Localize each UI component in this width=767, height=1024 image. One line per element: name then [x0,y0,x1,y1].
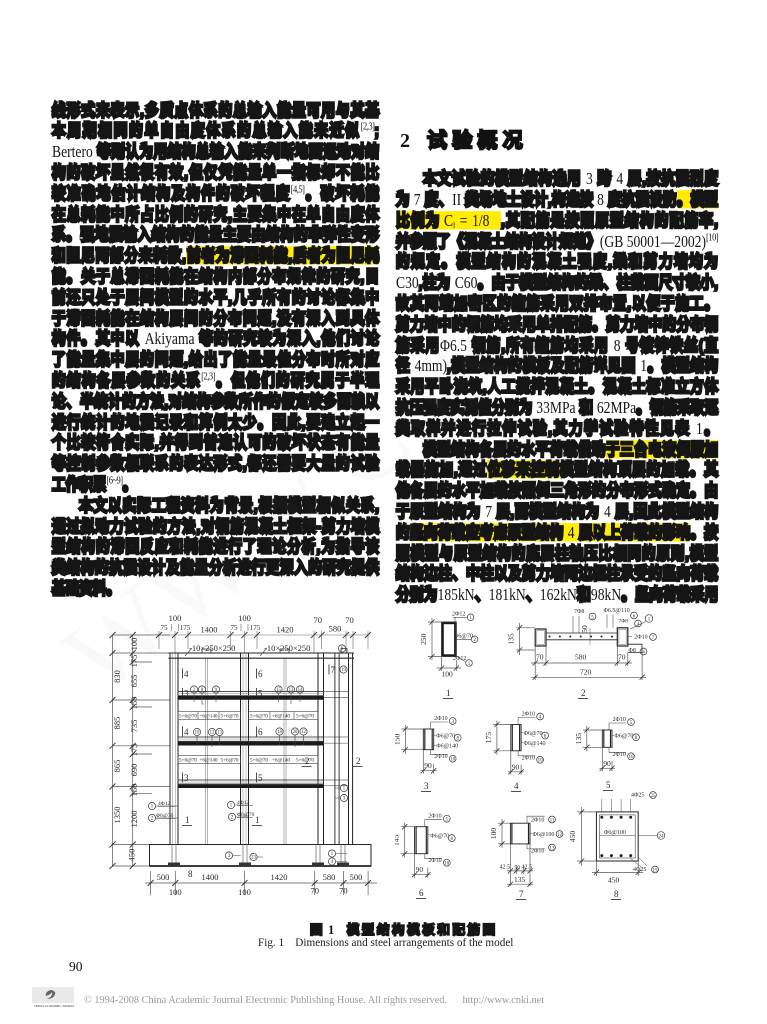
svg-text:7: 7 [331,665,336,675]
svg-text:2Φ10: 2Φ10 [531,818,544,824]
svg-text:720: 720 [580,668,592,677]
svg-text:690: 690 [129,764,139,777]
svg-text:6: 6 [419,888,424,898]
svg-text:-10×250×250: -10×250×250 [264,643,310,653]
svg-text:Φ6@70: Φ6@70 [615,734,634,740]
svg-text:450: 450 [127,849,137,862]
svg-text:4: 4 [184,727,189,737]
svg-text:1: 1 [648,617,651,622]
svg-text:4: 4 [514,781,519,791]
svg-text:Φ6@70: Φ6@70 [237,812,255,818]
svg-text:7: 7 [519,889,524,899]
svg-text:1420: 1420 [277,625,294,635]
svg-text:75: 75 [161,624,169,632]
svg-text:4Φ12: 4Φ12 [237,800,250,806]
svg-text:2Φ10: 2Φ10 [613,752,626,758]
svg-text:5: 5 [258,773,263,783]
svg-text:70: 70 [339,886,348,896]
svg-text:8: 8 [188,869,193,879]
svg-text:150: 150 [129,697,139,710]
svg-text:175: 175 [250,624,261,632]
svg-text:7Φ8: 7Φ8 [619,619,629,625]
svg-text:90: 90 [512,762,520,771]
svg-text:3: 3 [228,854,231,859]
svg-text:1: 1 [343,787,346,792]
svg-text:100: 100 [442,670,454,679]
svg-text:175: 175 [484,732,493,744]
svg-text:12: 12 [210,731,215,736]
svg-text:150: 150 [129,784,139,797]
svg-text:2Φ10: 2Φ10 [434,754,447,760]
svg-text:70: 70 [313,615,322,625]
svg-text:10: 10 [195,731,200,736]
svg-text:23: 23 [251,856,256,861]
svg-text:70: 70 [345,615,354,625]
svg-text:90: 90 [603,759,611,768]
svg-text:100: 100 [238,887,251,897]
svg-text:150: 150 [395,733,401,745]
svg-text:2Φ12: 2Φ12 [452,612,465,618]
svg-text:2Φ10: 2Φ10 [531,849,544,855]
svg-text:1: 1 [446,688,451,698]
svg-text:13: 13 [289,688,294,693]
svg-text:580: 580 [323,872,336,882]
svg-text:10: 10 [538,759,544,764]
svg-text:5: 5 [258,689,263,699]
svg-text:3: 3 [424,781,429,791]
svg-text:12: 12 [301,730,306,735]
svg-text:4: 4 [184,669,189,679]
svg-text:10: 10 [444,862,450,867]
svg-text:735: 735 [129,720,139,733]
svg-text:12: 12 [557,833,563,838]
svg-text:4: 4 [331,860,334,865]
svg-text:9: 9 [341,647,344,652]
svg-text:5+6@70: 5+6@70 [179,714,197,720]
svg-text:100: 100 [129,638,139,651]
svg-text:100: 100 [489,828,498,840]
svg-text:90: 90 [424,761,432,770]
svg-text:42.5: 42.5 [500,865,511,871]
svg-text:Φ6@100: Φ6@100 [533,832,555,838]
svg-text:Φ6@70: Φ6@70 [524,731,543,737]
svg-text:75: 75 [231,624,239,632]
svg-text:6: 6 [258,669,263,679]
svg-text:580: 580 [329,624,342,634]
svg-text:5+6@70: 5+6@70 [250,758,268,764]
svg-text:18: 18 [277,730,282,735]
svg-text:Φ6@70: Φ6@70 [454,634,473,640]
svg-text:Φ6@140: Φ6@140 [436,744,458,750]
svg-text:90: 90 [416,865,424,874]
svg-text:70: 70 [310,886,319,896]
svg-text:11: 11 [550,818,555,823]
svg-text:1: 1 [230,804,233,809]
svg-text:5+6@70: 5+6@70 [179,758,197,764]
svg-text:-10×250×250: -10×250×250 [189,643,235,653]
svg-text:CHINA ACADEMIC JOURNAL: CHINA ACADEMIC JOURNAL [34,1004,74,1008]
svg-text:Φ6@140: Φ6@140 [524,741,546,747]
svg-text:580: 580 [575,653,587,662]
svg-text:Φ6.5@110: Φ6.5@110 [604,608,630,614]
svg-text:175: 175 [180,624,191,632]
svg-text:Φ6@100: Φ6@100 [604,830,626,836]
svg-text:1: 1 [331,852,334,857]
svg-text:830: 830 [112,670,122,683]
svg-text:885: 885 [112,717,122,730]
svg-text:100: 100 [238,613,251,623]
svg-text:100: 100 [169,613,182,623]
svg-text:2Φ10: 2Φ10 [634,635,647,641]
svg-text:2Φ10: 2Φ10 [428,858,441,864]
svg-text:5: 5 [606,780,611,790]
svg-text:655: 655 [129,675,139,688]
svg-text:2Φ12: 2Φ12 [453,656,466,662]
svg-text:4Φ12: 4Φ12 [158,801,171,807]
svg-text:1420: 1420 [271,872,288,882]
svg-text:3: 3 [343,797,346,802]
svg-text:13: 13 [217,731,222,736]
svg-text:2: 2 [356,756,361,766]
svg-text:Φ6@70: Φ6@70 [430,833,449,839]
svg-text:15: 15 [276,688,281,693]
svg-text:50: 50 [514,866,520,872]
svg-text:2Φ10: 2Φ10 [613,717,626,723]
svg-text:5+6@70: 5+6@70 [220,758,238,764]
svg-text:15: 15 [653,868,659,873]
svg-text:175: 175 [129,655,139,668]
svg-text:Φ6@70: Φ6@70 [156,813,174,819]
svg-text:2: 2 [305,756,310,766]
svg-text:24: 24 [659,834,665,839]
svg-text:1200: 1200 [129,811,139,828]
svg-text:135: 135 [514,875,526,884]
svg-text:9: 9 [215,688,218,693]
svg-text:2: 2 [581,688,586,698]
svg-text:500: 500 [350,872,363,882]
svg-text:+6@140: +6@140 [272,714,290,720]
svg-text:250: 250 [419,633,428,645]
svg-text:5+6@70: 5+6@70 [250,714,268,720]
svg-text:2: 2 [193,688,196,693]
svg-text:Φ8: Φ8 [629,648,636,654]
svg-text:8: 8 [201,688,204,693]
svg-text:+6@140: +6@140 [199,758,217,764]
svg-text:1400: 1400 [202,872,219,882]
svg-text:865: 865 [112,760,122,773]
svg-text:70: 70 [618,653,626,662]
svg-text:3: 3 [184,773,189,783]
svg-text:450: 450 [608,876,620,885]
svg-text:10: 10 [629,755,635,760]
svg-text:135: 135 [574,733,583,745]
svg-text:+6@140: +6@140 [272,758,290,764]
svg-text:450: 450 [568,831,577,843]
svg-text:19: 19 [341,668,346,673]
svg-text:2Φ10: 2Φ10 [522,755,535,761]
svg-text:14: 14 [298,688,303,693]
svg-text:5+6@70: 5+6@70 [296,714,314,720]
svg-text:145: 145 [395,834,401,846]
svg-text:5+6@70: 5+6@70 [220,714,238,720]
svg-text:70: 70 [536,653,544,662]
svg-text:2: 2 [231,816,234,821]
svg-text:13: 13 [550,846,556,851]
svg-text:2Φ10: 2Φ10 [434,716,447,722]
svg-text:1350: 1350 [112,807,122,824]
svg-text:+6@140: +6@140 [199,714,217,720]
svg-text:42.5: 42.5 [522,865,533,871]
svg-text:500: 500 [157,872,170,882]
svg-text:1: 1 [185,815,190,825]
svg-text:10: 10 [450,758,456,763]
svg-text:25: 25 [651,794,657,799]
svg-text:7Φ8: 7Φ8 [574,609,584,615]
svg-text:4Φ25: 4Φ25 [631,793,644,799]
svg-text:3: 3 [184,689,189,699]
svg-text:2Φ10: 2Φ10 [522,712,535,718]
svg-text:1400: 1400 [201,625,218,635]
svg-text:1: 1 [255,815,260,825]
svg-text:Φ6@70: Φ6@70 [436,734,455,740]
svg-text:135: 135 [507,633,516,645]
svg-text:2: 2 [151,817,154,822]
svg-text:50: 50 [580,625,589,633]
svg-text:8: 8 [614,889,619,899]
svg-text:175: 175 [129,744,139,757]
svg-text:100: 100 [169,887,182,897]
svg-text:2Φ10: 2Φ10 [428,814,441,820]
svg-text:6: 6 [258,727,263,737]
svg-text:20: 20 [293,730,298,735]
svg-text:1: 1 [151,805,154,810]
